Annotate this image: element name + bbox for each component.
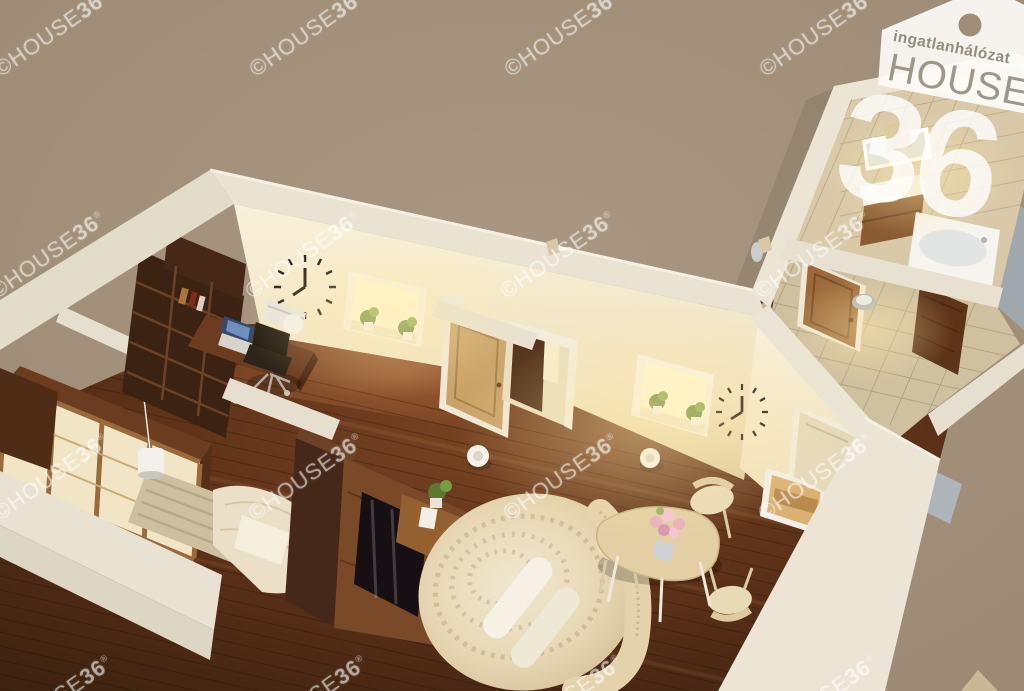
house36-logo: ingatlanhálózat HOUSE 36 — [849, 0, 1024, 250]
console-frame — [418, 507, 437, 529]
logo-number: 36 — [826, 66, 1007, 245]
real-estate-3d-floorplan-photo: ©HOUSE36® ©HOUSE36® ©HOUSE36® ©HOUSE36® … — [0, 0, 1024, 691]
